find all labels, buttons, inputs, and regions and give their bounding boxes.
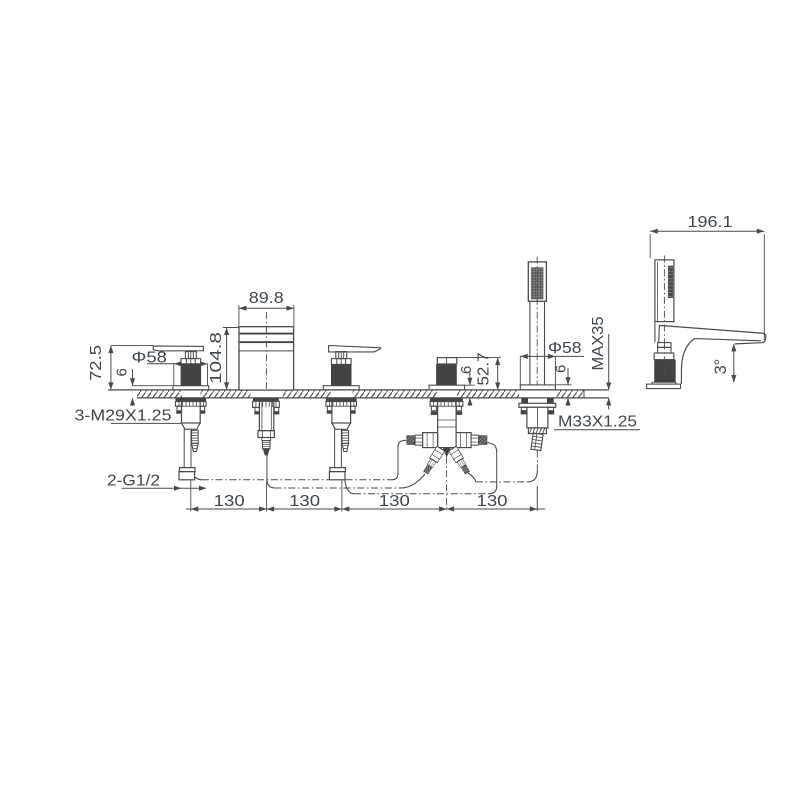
svg-text:6: 6 [458,366,475,374]
svg-text:130: 130 [379,493,410,510]
svg-text:MAX35: MAX35 [590,316,607,370]
svg-text:M33X1.25: M33X1.25 [558,414,637,431]
svg-text:2-G1/2: 2-G1/2 [107,472,160,489]
svg-text:89.8: 89.8 [249,290,284,307]
svg-text:130: 130 [289,493,320,510]
svg-text:6: 6 [553,365,570,373]
svg-text:196.1: 196.1 [688,214,733,231]
svg-text:Φ58: Φ58 [548,340,582,357]
svg-text:130: 130 [214,493,245,510]
svg-text:3°: 3° [712,359,730,375]
svg-text:130: 130 [477,493,508,510]
svg-text:6: 6 [114,368,131,376]
svg-text:3-M29X1.25: 3-M29X1.25 [75,408,172,425]
svg-text:72.5: 72.5 [88,345,105,381]
svg-text:104.8: 104.8 [208,332,225,384]
